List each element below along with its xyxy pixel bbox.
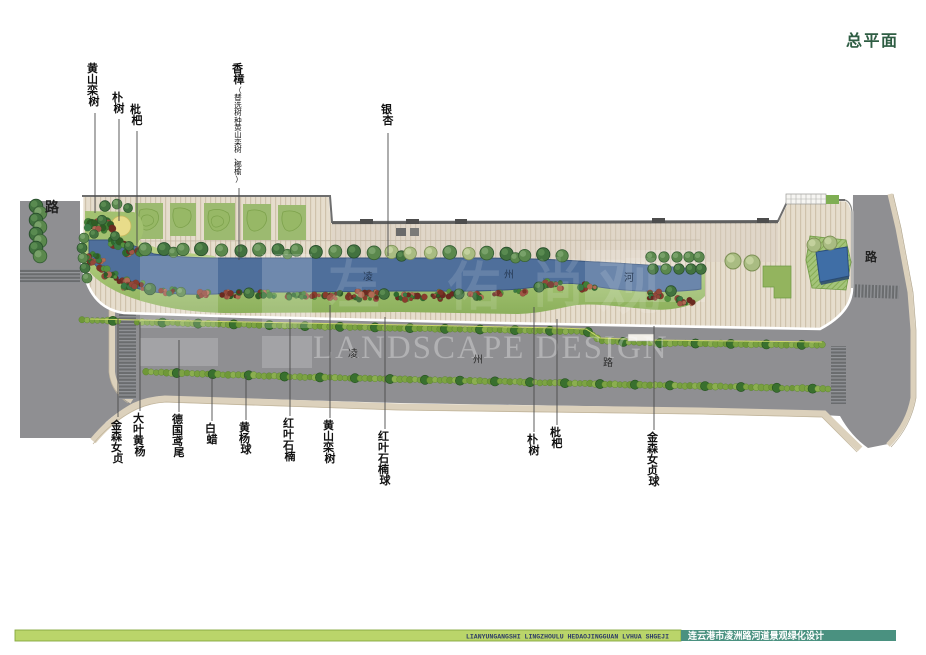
svg-text:总平面: 总平面 — [846, 31, 899, 50]
svg-text:白 蜡: 白 蜡 — [205, 421, 219, 446]
svg-text:黄 山 栾 树: 黄 山 栾 树 — [86, 61, 101, 108]
svg-text:左: 左 — [328, 257, 380, 315]
svg-text:连云港市凌洲路河道景观绿化设计: 连云港市凌洲路河道景观绿化设计 — [688, 630, 824, 642]
svg-text:佑: 佑 — [447, 259, 500, 317]
svg-text:路: 路 — [45, 199, 60, 215]
svg-text:凌: 凌 — [363, 270, 373, 283]
svg-text:枇 杷: 枇 杷 — [130, 102, 144, 127]
svg-text:（ 替 选 树 种 黄 山 栾 树 、 榔 榆 ）: （ 替 选 树 种 黄 山 栾 树 、 榔 榆 ） — [234, 86, 244, 184]
svg-text:德 国 鸢 尾: 德 国 鸢 尾 — [171, 412, 186, 459]
svg-text:朴 树: 朴 树 — [527, 432, 541, 457]
svg-text:香 樟: 香 樟 — [231, 61, 246, 86]
svg-text:黄 山 栾 树: 黄 山 栾 树 — [322, 418, 337, 465]
svg-text:观: 观 — [598, 254, 660, 322]
svg-text:黄 杨 球: 黄 杨 球 — [239, 420, 253, 456]
svg-text:红 叶 石 楠: 红 叶 石 楠 — [282, 416, 297, 463]
svg-text:州: 州 — [504, 269, 514, 281]
svg-text:尚: 尚 — [532, 256, 584, 314]
svg-text:LIANYUNGANGSHI LINGZHOULU HEDA: LIANYUNGANGSHI LINGZHOULU HEDAOJINGGUAN … — [466, 634, 669, 641]
svg-text:路: 路 — [865, 249, 878, 264]
svg-text:路: 路 — [603, 356, 613, 369]
svg-text:红 叶 石 楠 球: 红 叶 石 楠 球 — [377, 429, 392, 487]
svg-text:凌: 凌 — [348, 347, 358, 360]
svg-text:金 森 女 贞 球: 金 森 女 贞 球 — [646, 430, 661, 488]
svg-text:银 杏: 银 杏 — [381, 102, 395, 127]
svg-text:枇 杷: 枇 杷 — [550, 425, 564, 450]
svg-text:金 森 女 贞: 金 森 女 贞 — [110, 418, 125, 465]
svg-text:州: 州 — [473, 354, 483, 366]
svg-text:河: 河 — [624, 272, 634, 284]
svg-text:朴 树: 朴 树 — [112, 90, 126, 115]
svg-text:大 叶 黄 杨: 大 叶 黄 杨 — [133, 411, 147, 458]
svg-text:LANDSCAPE DESIGN: LANDSCAPE DESIGN — [313, 330, 669, 366]
